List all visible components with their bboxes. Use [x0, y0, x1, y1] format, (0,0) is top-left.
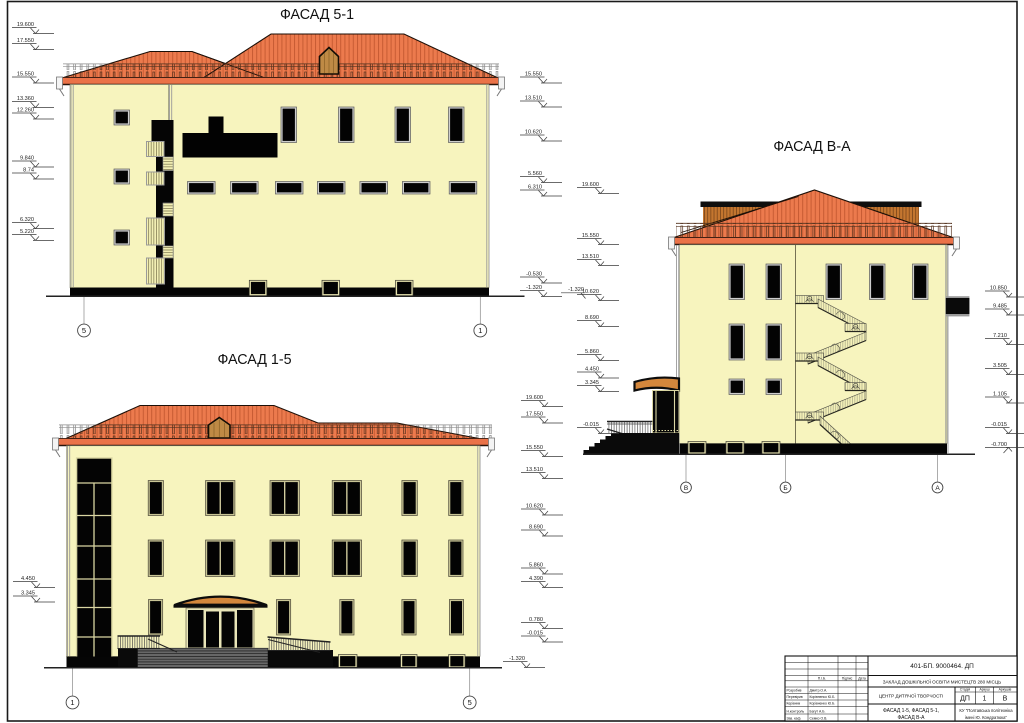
- svg-text:9.485: 9.485: [993, 303, 1007, 309]
- svg-text:17.550: 17.550: [526, 411, 543, 417]
- svg-text:Багут А.Б.: Багут А.Б.: [810, 710, 826, 714]
- svg-text:4.450: 4.450: [585, 366, 599, 372]
- svg-text:8.690: 8.690: [529, 524, 543, 530]
- svg-text:9.840: 9.840: [20, 155, 34, 161]
- svg-text:13.510: 13.510: [582, 254, 599, 260]
- svg-text:Розробив: Розробив: [787, 689, 802, 693]
- svg-text:-0.700: -0.700: [991, 442, 1007, 448]
- svg-text:19.600: 19.600: [582, 182, 599, 188]
- svg-text:5.860: 5.860: [585, 349, 599, 355]
- svg-text:3.505: 3.505: [993, 363, 1007, 369]
- svg-text:Перевірив: Перевірив: [787, 695, 803, 699]
- svg-text:-0.015: -0.015: [527, 630, 543, 636]
- svg-text:3.345: 3.345: [21, 590, 35, 596]
- svg-text:4.390: 4.390: [529, 576, 543, 582]
- svg-text:19.600: 19.600: [526, 395, 543, 401]
- svg-text:ЦЕНТР ДИТЯЧОЇ ТВОРЧОСТІ: ЦЕНТР ДИТЯЧОЇ ТВОРЧОСТІ: [879, 693, 944, 699]
- svg-text:ФАСАД 1-5, ФАСАД 5-1,: ФАСАД 1-5, ФАСАД 5-1,: [883, 708, 939, 714]
- svg-text:15.550: 15.550: [526, 445, 543, 451]
- svg-text:Підпис: Підпис: [842, 677, 853, 681]
- svg-text:10.620: 10.620: [582, 289, 599, 295]
- svg-text:5.560: 5.560: [528, 171, 542, 177]
- svg-text:15.550: 15.550: [17, 71, 34, 77]
- svg-text:401-БП. 9000464. ДП: 401-БП. 9000464. ДП: [910, 663, 974, 670]
- svg-text:П.І.Б.: П.І.Б.: [818, 677, 826, 681]
- svg-text:13.360: 13.360: [17, 96, 34, 102]
- svg-text:1: 1: [983, 696, 987, 703]
- svg-text:ФАСАД В-А: ФАСАД В-А: [897, 715, 925, 721]
- svg-text:ДП: ДП: [960, 696, 970, 703]
- svg-text:10.850: 10.850: [990, 285, 1007, 291]
- svg-text:-1.320: -1.320: [509, 656, 525, 662]
- svg-text:Корівненко Ю.Б.: Корівненко Ю.Б.: [810, 695, 836, 699]
- svg-text:5: 5: [468, 698, 472, 707]
- svg-text:-0.015: -0.015: [991, 422, 1007, 428]
- svg-text:15.550: 15.550: [582, 233, 599, 239]
- svg-text:ЗАКЛАД ДОШКІЛЬНОЇ ОСВІТИ МИСТЕ: ЗАКЛАД ДОШКІЛЬНОЇ ОСВІТИ МИСТЕЦТВ 280 МІ…: [883, 679, 1002, 685]
- svg-text:10.620: 10.620: [525, 129, 542, 135]
- svg-text:Корівненко Ю.Б.: Корівненко Ю.Б.: [810, 702, 836, 706]
- svg-text:Аркуш: Аркуш: [979, 688, 989, 692]
- svg-text:8.74: 8.74: [23, 167, 34, 173]
- svg-text:Дата: Дата: [858, 677, 866, 681]
- svg-text:Семко О.В.: Семко О.В.: [810, 717, 828, 721]
- svg-text:0.780: 0.780: [529, 617, 543, 623]
- svg-text:3.345: 3.345: [585, 380, 599, 386]
- svg-text:ФАСАД 1-5: ФАСАД 1-5: [217, 352, 291, 368]
- svg-text:імені Ю. Кондратюка": імені Ю. Кондратюка": [965, 715, 1008, 720]
- svg-text:5: 5: [82, 326, 86, 335]
- svg-text:17.550: 17.550: [17, 38, 34, 44]
- svg-text:Керівник: Керівник: [787, 702, 801, 706]
- svg-text:10.620: 10.620: [526, 503, 543, 509]
- svg-text:КУ "Полтавська політехніка: КУ "Полтавська політехніка: [959, 708, 1013, 713]
- svg-text:А: А: [935, 485, 940, 492]
- svg-text:-0.015: -0.015: [583, 422, 599, 428]
- svg-text:5.220: 5.220: [20, 229, 34, 235]
- svg-text:5.860: 5.860: [529, 562, 543, 568]
- svg-text:4.450: 4.450: [21, 576, 35, 582]
- svg-text:13.510: 13.510: [526, 467, 543, 473]
- svg-text:Дмитр.О.А.: Дмитр.О.А.: [810, 689, 828, 693]
- svg-text:Н.контроль: Н.контроль: [787, 710, 805, 714]
- svg-text:19.600: 19.600: [17, 22, 34, 28]
- svg-text:-1.320: -1.320: [526, 285, 542, 291]
- svg-text:6.310: 6.310: [528, 184, 542, 190]
- svg-text:12.260: 12.260: [17, 107, 34, 113]
- svg-text:Аркушів: Аркушів: [999, 688, 1012, 692]
- svg-text:Стадія: Стадія: [960, 688, 971, 692]
- svg-text:8.690: 8.690: [585, 315, 599, 321]
- svg-text:ФАСАД 5-1: ФАСАД 5-1: [280, 7, 354, 23]
- svg-text:13.510: 13.510: [525, 95, 542, 101]
- svg-text:7.210: 7.210: [993, 333, 1007, 339]
- svg-text:-0.530: -0.530: [526, 271, 542, 277]
- svg-text:1.105: 1.105: [993, 391, 1007, 397]
- svg-text:ФАСАД В-А: ФАСАД В-А: [773, 139, 851, 155]
- svg-text:В: В: [684, 485, 688, 492]
- svg-text:1: 1: [478, 326, 482, 335]
- svg-text:Б: Б: [783, 485, 787, 492]
- svg-text:6.320: 6.320: [20, 217, 34, 223]
- svg-text:В: В: [1003, 696, 1008, 703]
- svg-text:1: 1: [70, 698, 74, 707]
- svg-text:-1.320: -1.320: [568, 287, 584, 293]
- svg-text:Зав. каф.: Зав. каф.: [787, 717, 802, 721]
- svg-text:15.550: 15.550: [525, 71, 542, 77]
